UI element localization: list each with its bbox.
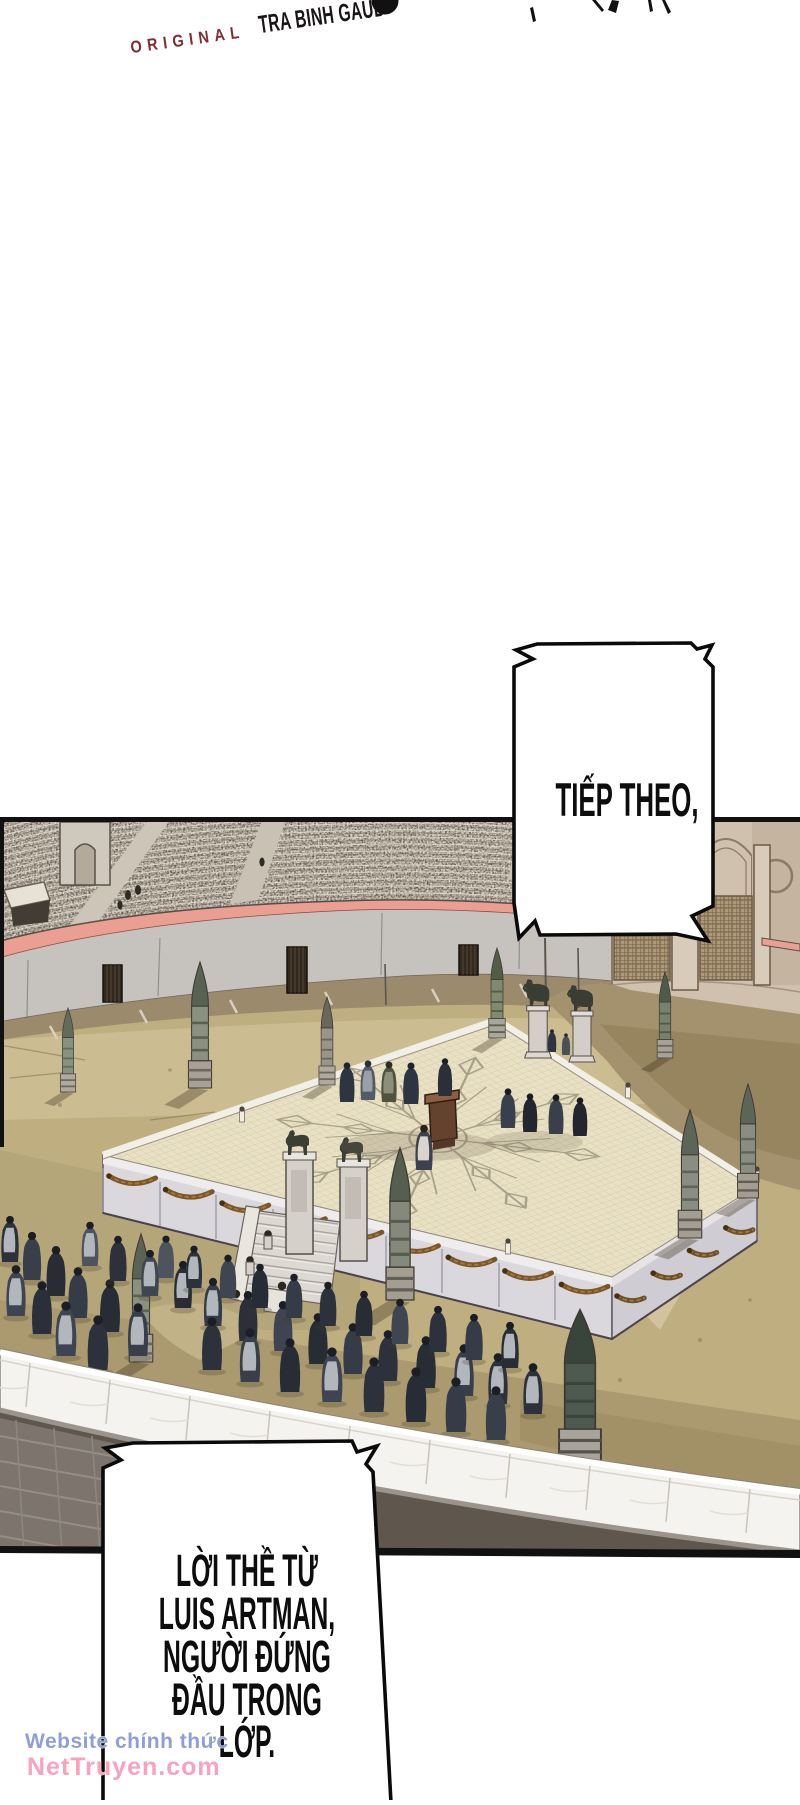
- svg-text:Website chính thức: Website chính thức: [25, 1730, 229, 1753]
- svg-text:TIẾP THEO,: TIẾP THEO,: [555, 773, 698, 828]
- svg-text:NetTruyen.com: NetTruyen.com: [27, 1753, 221, 1781]
